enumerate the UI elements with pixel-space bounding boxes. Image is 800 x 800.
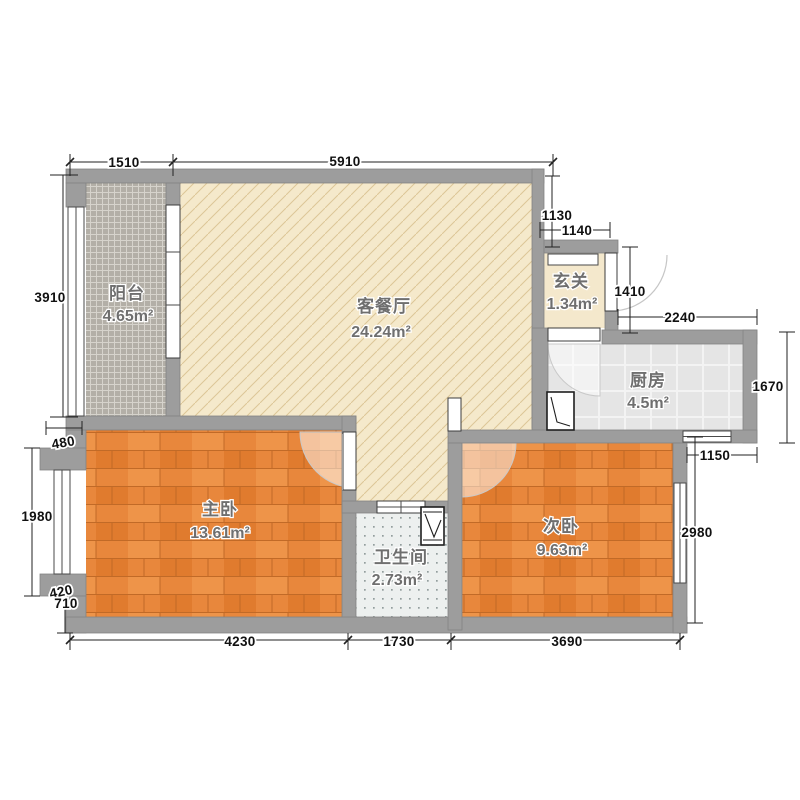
dim-label: 3690 (551, 634, 582, 649)
dim-label: 710 (54, 596, 77, 611)
dim-label: 1730 (383, 634, 414, 649)
room-area-kitchen: 4.5m² (627, 395, 669, 412)
room-label-master-bedroom: 主卧 (202, 499, 238, 519)
dim-line-bottom (70, 633, 680, 650)
dim-label: 3910 (34, 290, 65, 305)
wall-segment (66, 169, 544, 183)
dim-label: 4230 (224, 634, 255, 649)
dim-label: 1510 (108, 155, 139, 170)
second-bedroom-door-leaf (448, 398, 461, 431)
balcony-sliding-door (166, 205, 180, 358)
dim-label: 1130 (542, 208, 573, 223)
dim-label: 1150 (700, 448, 731, 463)
room-area-master-bedroom: 13.61m² (190, 525, 250, 542)
room-label-second-bedroom: 次卧 (543, 516, 579, 536)
master-bedroom-floor (86, 430, 342, 617)
wall-segment (532, 328, 548, 430)
entry-door-swing-arc (611, 255, 667, 311)
entry-door-leaf (605, 253, 617, 311)
wall-segment (342, 501, 377, 513)
wall-segment (40, 448, 86, 470)
wall-segment (66, 617, 687, 633)
dim-label: 1980 (21, 509, 52, 524)
master-bedroom-door-leaf (343, 432, 356, 490)
wall-segment (66, 183, 86, 207)
wall-segment (66, 416, 356, 430)
wall-segment (448, 443, 462, 630)
wall-segment (602, 330, 757, 344)
wall-segment (605, 311, 618, 332)
room-area-living-dining: 24.24m² (351, 324, 411, 341)
shower-fixture-icon (421, 507, 444, 545)
wall-segment (166, 183, 180, 205)
dim-label: 2980 (681, 525, 712, 540)
dim-label: 1140 (562, 223, 593, 238)
dim-label: 5910 (329, 154, 360, 169)
room-label-balcony: 阳台 (109, 283, 145, 303)
room-label-kitchen: 厨房 (630, 370, 666, 390)
room-area-balcony: 4.65m² (103, 308, 154, 325)
room-label-entry: 玄关 (553, 271, 589, 291)
floor-plan-svg: 1510 5910 1130 1140 1410 2240 1670 1150 … (0, 0, 800, 800)
room-label-bathroom: 卫生间 (374, 547, 428, 567)
room-area-entry: 1.34m² (547, 296, 598, 313)
room-area-second-bedroom: 9.63m² (537, 542, 588, 559)
room-label-living-dining: 客餐厅 (356, 296, 411, 316)
dim-label: 1410 (614, 284, 645, 299)
dim-label: 2240 (664, 310, 695, 325)
floor-plan-canvas: 1510 5910 1130 1140 1410 2240 1670 1150 … (0, 0, 800, 800)
room-area-bathroom: 2.73m² (372, 572, 423, 589)
kitchen-door-leaf (548, 328, 600, 341)
dim-label: 1670 (752, 379, 783, 394)
wall-segment (166, 358, 180, 416)
entry-hall-cabinet (548, 254, 598, 265)
